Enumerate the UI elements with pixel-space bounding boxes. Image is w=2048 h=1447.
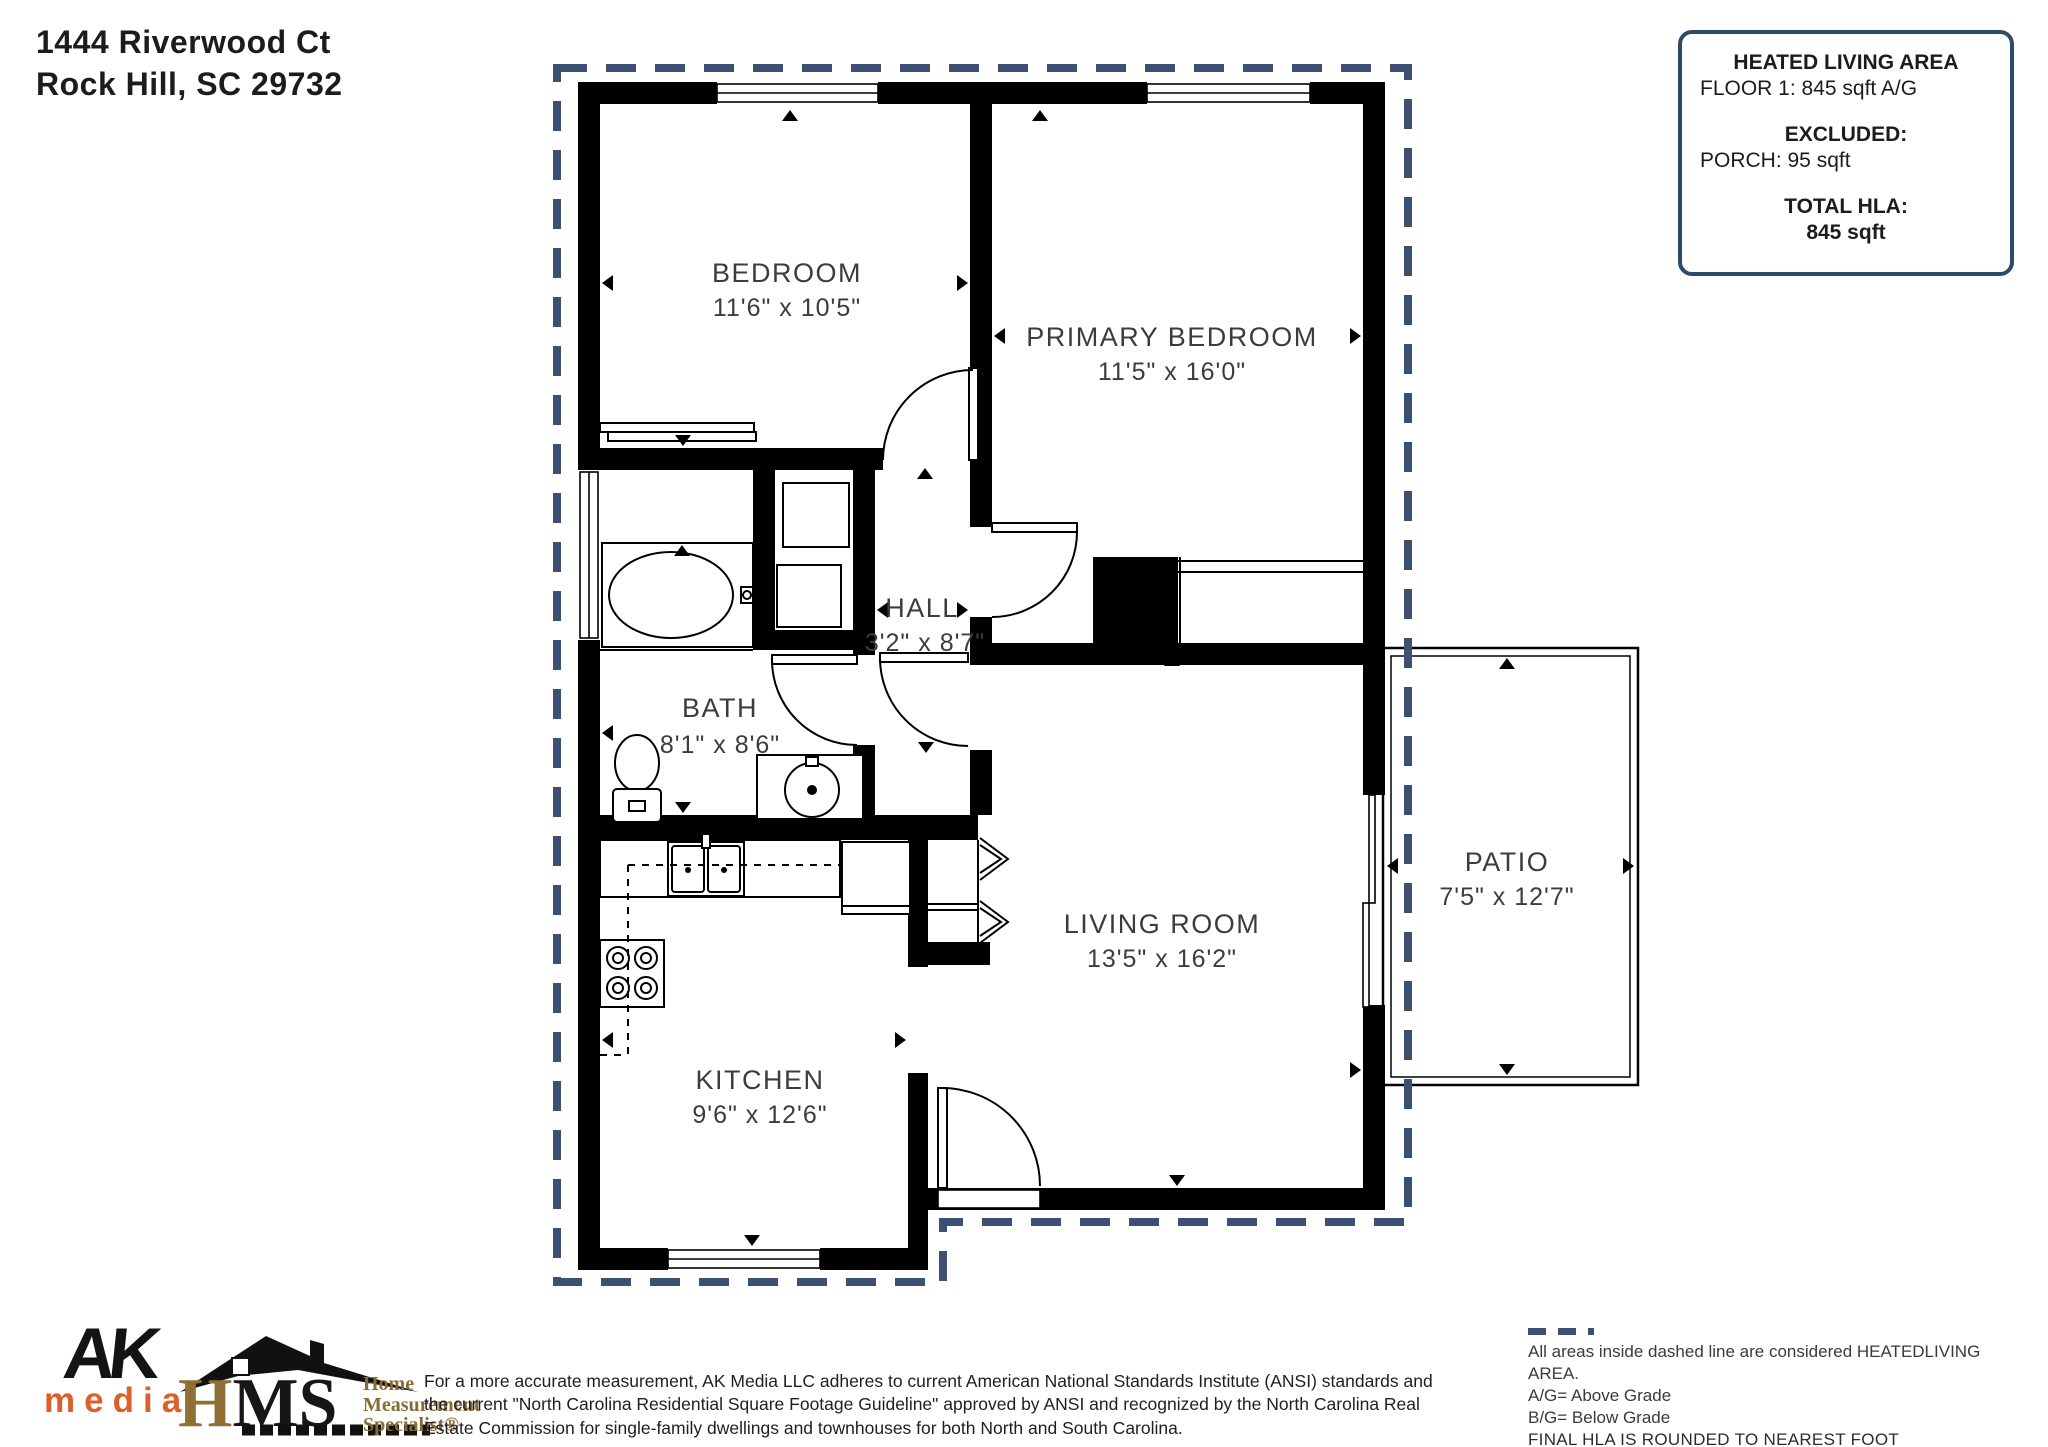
ak-media-logo: AK media bbox=[44, 1322, 174, 1421]
bath-sink-icon bbox=[757, 755, 863, 819]
wall-right-upper bbox=[1363, 82, 1385, 795]
kitchen-window bbox=[668, 1248, 820, 1270]
primary-bedroom-window bbox=[1147, 82, 1310, 104]
bedroom-closet-door bbox=[600, 423, 754, 432]
patio-sliding-door bbox=[1363, 795, 1375, 1007]
dimension-arrow bbox=[602, 275, 613, 291]
dimension-arrow bbox=[744, 1235, 760, 1246]
hms-tagline-1: Home bbox=[363, 1373, 414, 1395]
living-room-label: LIVING ROOM bbox=[1064, 909, 1261, 939]
bath-door bbox=[772, 655, 857, 745]
floorplan-page: 1444 Riverwood Ct Rock Hill, SC 29732 HE… bbox=[0, 0, 2048, 1447]
dimension-arrow bbox=[1032, 110, 1048, 121]
wall-kitchen-living bbox=[908, 1073, 928, 1188]
legend-line2: A/G= Above Grade bbox=[1528, 1385, 2033, 1407]
dimension-arrow bbox=[675, 802, 691, 813]
disclaimer-line1: For a more accurate measurement, AK Medi… bbox=[424, 1370, 1464, 1393]
linen-closet-shelf bbox=[777, 565, 841, 627]
wall-pantry-bottom bbox=[920, 942, 990, 965]
living-room-dims: 13'5" x 16'2" bbox=[1087, 945, 1237, 973]
hall-label: HALL bbox=[885, 593, 959, 623]
bath-label: BATH bbox=[682, 693, 758, 723]
patio-label: PATIO bbox=[1465, 847, 1550, 877]
hall-living-door bbox=[880, 653, 968, 746]
bath-window bbox=[578, 470, 600, 640]
ansi-disclaimer: For a more accurate measurement, AK Medi… bbox=[424, 1370, 1464, 1440]
bedroom-door bbox=[883, 368, 978, 460]
primary-bedroom-dims: 11'5" x 16'0" bbox=[1098, 358, 1246, 386]
hms-acronym: HMS bbox=[178, 1365, 337, 1440]
dimension-arrow bbox=[1350, 328, 1361, 344]
dimension-arrow bbox=[994, 328, 1005, 344]
wall-divider-stub2 bbox=[970, 750, 992, 815]
linen-closet-shelf bbox=[783, 483, 849, 547]
floorplan-drawing: BEDROOM 11'6" x 10'5" PRIMARY BEDROOM 11… bbox=[0, 0, 2048, 1447]
patio-dims: 7'5" x 12'7" bbox=[1439, 883, 1574, 911]
front-door bbox=[938, 1088, 1040, 1188]
dimension-arrow bbox=[1169, 1175, 1185, 1186]
bathtub-icon bbox=[602, 543, 753, 647]
dimension-arrow bbox=[1350, 1062, 1361, 1078]
primary-bedroom-door bbox=[992, 523, 1077, 617]
disclaimer-line2: the current "North Carolina Residential … bbox=[424, 1393, 1464, 1416]
bedroom-dims: 11'6" x 10'5" bbox=[713, 294, 861, 322]
disclaimer-line3: Estate Commission for single-family dwel… bbox=[424, 1417, 1464, 1440]
wall-closet-left bbox=[753, 470, 775, 650]
dimension-arrow bbox=[918, 742, 934, 753]
stove-icon bbox=[600, 940, 664, 1007]
wall-closet-bottom bbox=[753, 630, 875, 650]
toilet-icon bbox=[613, 735, 661, 822]
front-door-threshold bbox=[938, 1190, 1040, 1208]
legend-line3: B/G= Below Grade bbox=[1528, 1407, 2033, 1429]
dimension-arrow bbox=[602, 725, 613, 741]
dimension-arrow bbox=[895, 1032, 906, 1048]
legend-line1: All areas inside dashed line are conside… bbox=[1528, 1341, 2033, 1385]
bedroom-label: BEDROOM bbox=[712, 258, 862, 288]
dimension-arrow bbox=[917, 468, 933, 479]
hall-dims: 3'2" x 8'7" bbox=[865, 629, 985, 657]
wall-left bbox=[578, 82, 600, 1270]
dimension-arrow bbox=[782, 110, 798, 121]
primary-bedroom-label: PRIMARY BEDROOM bbox=[1026, 322, 1318, 352]
legend-line4: FINAL HLA IS ROUNDED TO NEAREST FOOT bbox=[1528, 1429, 2033, 1447]
dimension-arrow bbox=[957, 275, 968, 291]
wall-bedroom-bottom bbox=[578, 448, 883, 470]
kitchen-label: KITCHEN bbox=[695, 1065, 824, 1095]
chimney-block bbox=[1093, 557, 1178, 647]
kitchen-dims: 9'6" x 12'6" bbox=[692, 1101, 827, 1129]
ak-logo-text: AK bbox=[41, 1322, 178, 1387]
heated-area-legend: All areas inside dashed line are conside… bbox=[1528, 1328, 2033, 1447]
wall-hall-left-upper bbox=[853, 470, 875, 655]
bath-dims: 8'1" x 8'6" bbox=[660, 731, 780, 759]
wall-right-lower bbox=[1363, 1005, 1385, 1210]
bedroom-window bbox=[717, 82, 878, 104]
refrigerator-icon bbox=[842, 842, 910, 914]
dashed-line-swatch bbox=[1528, 1328, 1594, 1335]
kitchen-fixtures bbox=[600, 834, 910, 1055]
dimension-arrow bbox=[602, 1032, 613, 1048]
